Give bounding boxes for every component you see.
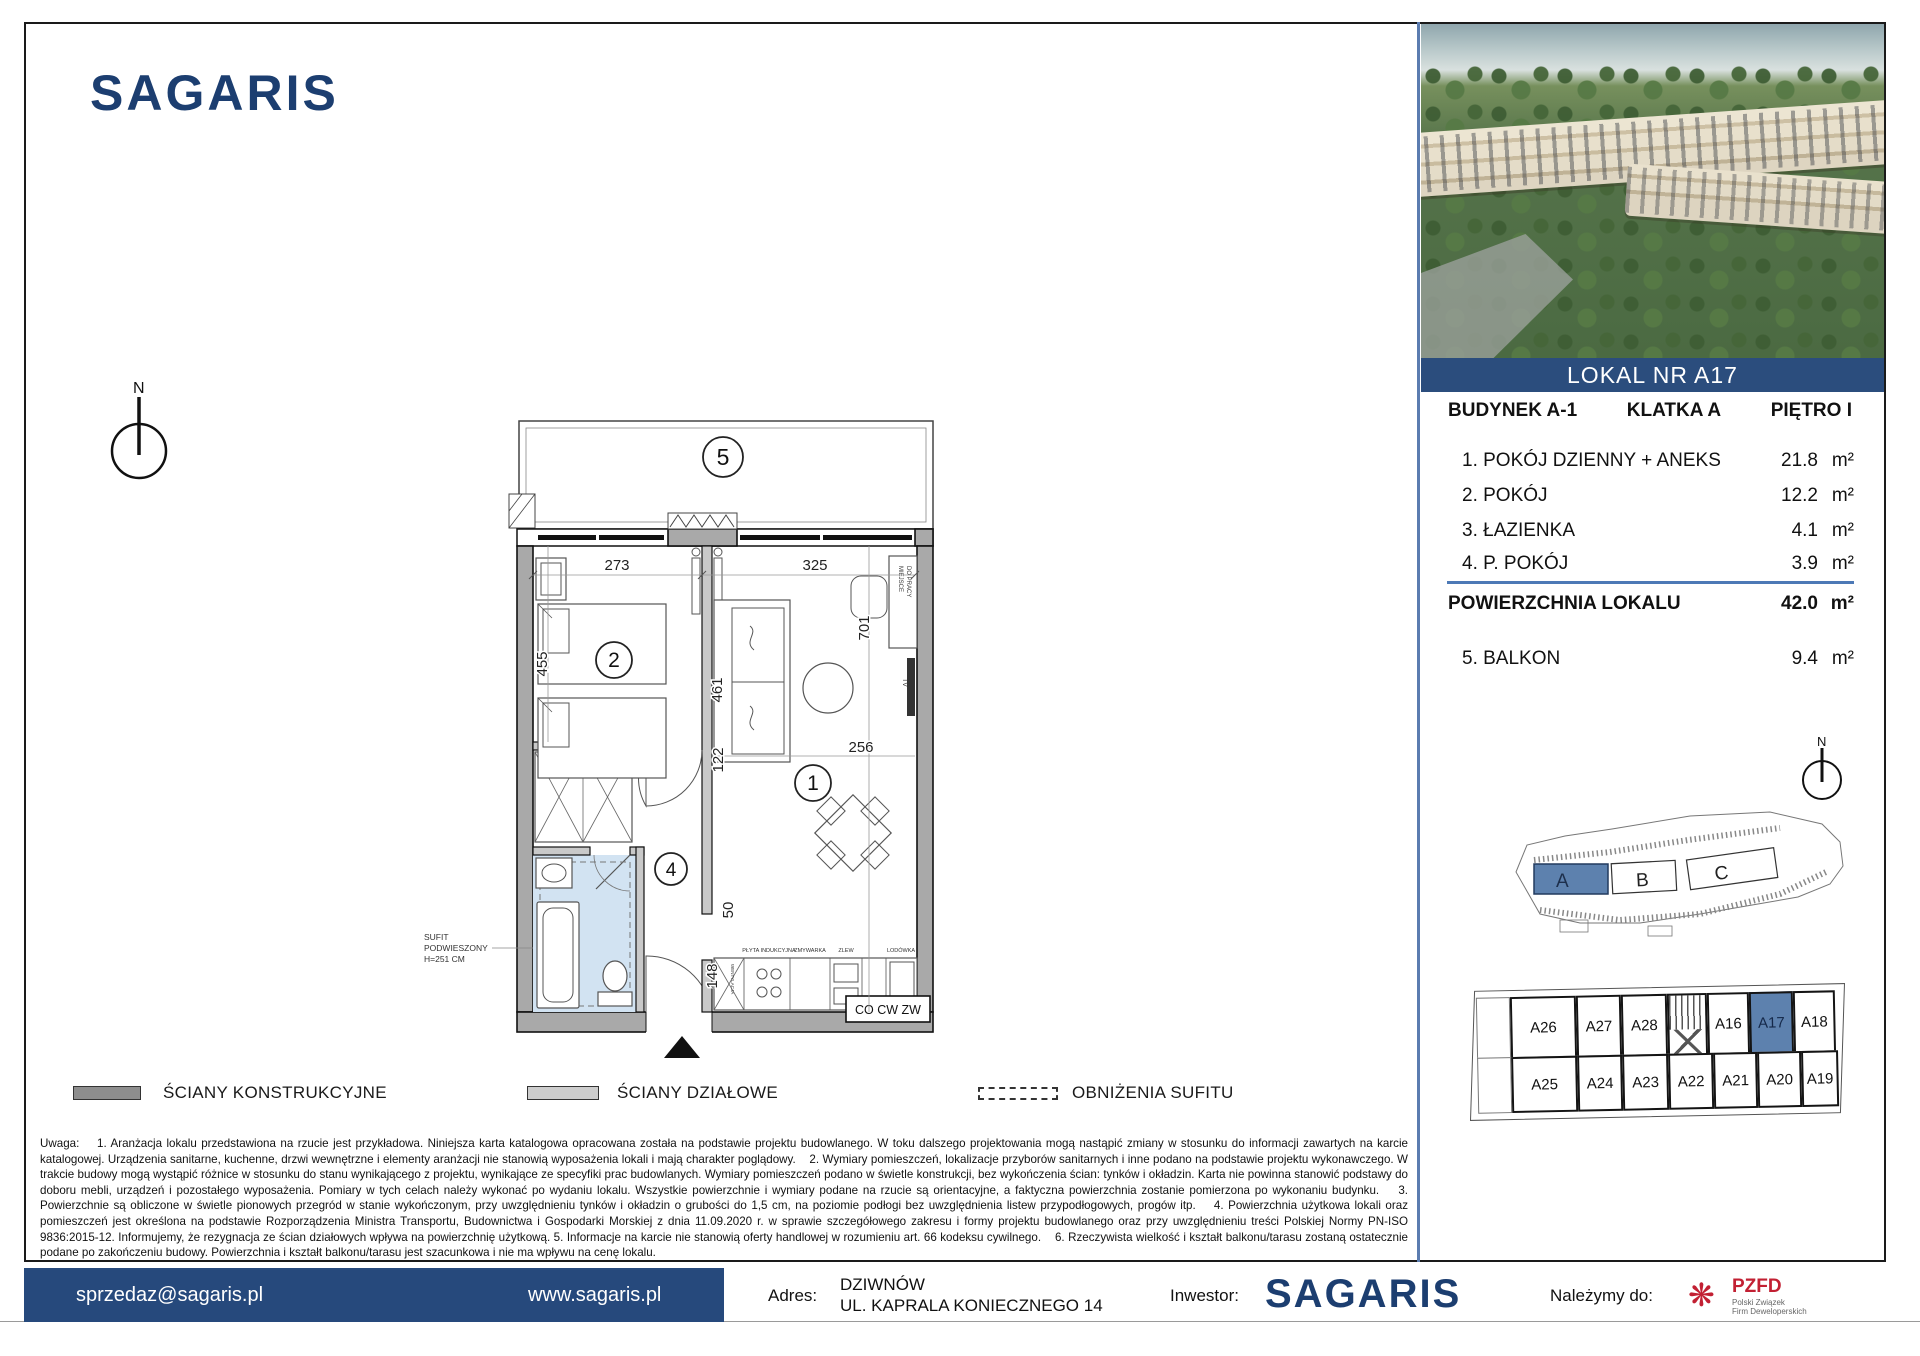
room-number-2: 2: [608, 649, 620, 672]
grid-unit-a17-highlighted: A17: [1749, 991, 1794, 1054]
grid-unit-a22: A22: [1668, 1053, 1714, 1110]
pzfd-subtitle-line2: Firm Deweloperskich: [1732, 1307, 1807, 1316]
bathroom-wall: [533, 847, 590, 855]
total-area-row: POWIERZCHNIA LOKALU 42.0 m²: [1448, 593, 1854, 615]
floor-plan: MIEJSCE DO PRACY TV WENTYLACJA PŁYTA IND…: [405, 352, 955, 1064]
ceiling-note-line2: PODWIESZONY: [424, 943, 488, 953]
grid-unit-a25: A25: [1511, 1056, 1578, 1113]
compass-north-icon: N: [105, 375, 180, 485]
room-unit: m²: [1818, 450, 1854, 472]
pzfd-logo-icon: ❋: [1688, 1276, 1715, 1314]
balcony-row: 5. BALKON 9.4 m²: [1462, 648, 1854, 670]
staircase-label: KLATKA A: [1627, 400, 1721, 422]
total-area: 42.0: [1766, 593, 1818, 615]
balcony-unit: m²: [1818, 648, 1854, 670]
entrance-opening: [646, 1011, 712, 1033]
balcony-area: 9.4: [1766, 648, 1818, 670]
grid-unit-a20: A20: [1757, 1051, 1802, 1108]
floor-label: PIĘTRO I: [1771, 400, 1852, 422]
room-unit: m²: [1818, 485, 1854, 507]
window-strip: [538, 535, 664, 540]
legend-dropped-ceiling: OBNIŻENIA SUFITU: [978, 1083, 1234, 1103]
dim-256: 256: [848, 739, 873, 756]
entrance-arrow: [664, 1036, 700, 1058]
room-area: 21.8: [1766, 450, 1818, 472]
disclaimer-text: Uwaga: 1. Aranżacja lokalu przedstawiona…: [40, 1136, 1408, 1261]
grid-unit-a28: A28: [1621, 994, 1668, 1057]
address-label: Adres:: [768, 1286, 817, 1306]
dim-273: 273: [604, 557, 629, 574]
catalog-card-page: SAGARIS N: [0, 0, 1920, 1356]
room-number-5: 5: [717, 444, 730, 470]
compass-n-label: N: [133, 380, 145, 397]
legend-label: OBNIŻENIA SUFITU: [1072, 1083, 1234, 1103]
tv: [907, 658, 915, 716]
investor-label: Inwestor:: [1170, 1286, 1239, 1306]
grid-unit-a16: A16: [1707, 992, 1750, 1055]
investor-logo: SAGARIS: [1265, 1272, 1461, 1317]
site-building-c: C: [1686, 848, 1777, 890]
dim-455: 455: [534, 651, 551, 676]
exterior-wall-right: [917, 546, 933, 1012]
unit-meta-row: BUDYNEK A-1 KLATKA A PIĘTRO I: [1448, 400, 1852, 422]
utilities-label: CO CW ZW: [855, 1003, 921, 1017]
fridge-label: LODÓWKA: [887, 947, 915, 954]
hob-label: PŁYTA INDUKCYJNA: [742, 948, 796, 954]
dim-50: 50: [720, 902, 737, 919]
grid-row-top: A26 A27 A28 A16 A17 A18: [1476, 990, 1838, 1060]
total-unit: m²: [1818, 593, 1854, 615]
exterior-wall-left: [517, 546, 533, 1012]
unit-banner: LOKAL NR A17: [1421, 358, 1884, 392]
legend-label: ŚCIANY DZIAŁOWE: [617, 1083, 778, 1103]
dim-148: 148: [704, 963, 721, 988]
sales-email-link[interactable]: sprzedaz@sagaris.pl: [76, 1284, 263, 1307]
dim-325: 325: [802, 557, 827, 574]
legend-partition-walls: ŚCIANY DZIAŁOWE: [527, 1083, 778, 1103]
vertical-divider: [1417, 22, 1420, 1262]
room-area: 3.9: [1766, 553, 1818, 575]
room-unit: m²: [1818, 520, 1854, 542]
room-area: 12.2: [1766, 485, 1818, 507]
washbasin: [536, 858, 572, 888]
site-compass-n: N: [1817, 734, 1826, 749]
dim-461: 461: [709, 677, 726, 702]
room-row-2: 2. POKÓJ 12.2 m²: [1462, 485, 1854, 507]
bathroom-wall-right: [636, 847, 644, 1012]
building-label: BUDYNEK A-1: [1448, 400, 1577, 422]
vent-label: WENTYLACJA: [730, 964, 735, 994]
membership-label: Należymy do:: [1550, 1286, 1653, 1306]
site-building-b: B: [1611, 860, 1676, 893]
grid-unit-a19: A19: [1801, 1050, 1839, 1107]
dishwasher-label: ZMYWARKA: [794, 948, 826, 954]
grid-staircase-core: [1667, 993, 1708, 1056]
room-row-3: 3. ŁAZIENKA 4.1 m²: [1462, 520, 1854, 542]
grid-unit-a24: A24: [1577, 1055, 1623, 1112]
pzfd-subtitle: Polski Związek Firm Deweloperskich: [1732, 1298, 1807, 1316]
dining-table: [815, 795, 891, 871]
room-number-4: 4: [666, 860, 677, 881]
partition-wall-swatch: [527, 1086, 599, 1100]
brand-logo: SAGARIS: [90, 64, 339, 122]
room-row-4: 4. P. POKÓJ 3.9 m²: [1462, 553, 1854, 575]
grid-row-bottom: A25 A24 A23 A22 A21 A20 A19: [1477, 1050, 1839, 1114]
bed: [538, 698, 666, 778]
living-furniture: [714, 556, 917, 871]
footer-bar: sprzedaz@sagaris.pl www.sagaris.pl Adres…: [0, 1268, 1920, 1322]
dim-701: 701: [856, 615, 873, 640]
pzfd-name: PZFD: [1732, 1276, 1782, 1298]
site-building-a: [1534, 864, 1608, 894]
structural-wall-swatch: [73, 1086, 141, 1100]
room-name: 2. POKÓJ: [1462, 485, 1766, 507]
room-number-1: 1: [807, 772, 819, 795]
balcony-name: 5. BALKON: [1462, 648, 1766, 670]
ceiling-note-line1: SUFIT: [424, 932, 449, 942]
legend-label: ŚCIANY KONSTRUKCYJNE: [163, 1083, 387, 1103]
room-name: 4. P. POKÓJ: [1462, 553, 1766, 575]
website-link[interactable]: www.sagaris.pl: [528, 1284, 661, 1307]
partition-living: [702, 546, 712, 914]
grid-spacer: [1477, 1057, 1512, 1114]
tv-label: TV: [901, 678, 908, 687]
stairs-icon: [1669, 995, 1706, 1029]
coffee-table: [803, 663, 853, 713]
room-name: 3. ŁAZIENKA: [1462, 520, 1766, 542]
room-name: 1. POKÓJ DZIENNY + ANEKS: [1462, 450, 1766, 472]
toilet: [603, 961, 627, 991]
site-building-b-label: B: [1636, 870, 1650, 892]
desk-label-1: MIEJSCE: [897, 566, 903, 592]
grid-spacer: [1476, 997, 1511, 1060]
address-city: DZIWNÓW: [840, 1275, 925, 1295]
site-building-a-label: A: [1556, 871, 1569, 892]
room-area: 4.1: [1766, 520, 1818, 542]
dropped-ceiling-swatch: [978, 1087, 1058, 1100]
window-strip: [740, 535, 912, 540]
total-label: POWIERZCHNIA LOKALU: [1448, 593, 1766, 615]
grid-unit-a23: A23: [1622, 1054, 1669, 1111]
grid-unit-a21: A21: [1713, 1052, 1758, 1109]
total-separator: [1447, 581, 1854, 584]
dim-122: 122: [710, 747, 727, 772]
building-render-image: [1421, 24, 1884, 358]
site-plan: A B C: [1495, 805, 1865, 950]
sink-label: ZLEW: [838, 948, 854, 954]
legend-structural-walls: ŚCIANY KONSTRUKCYJNE: [73, 1083, 387, 1103]
grid-unit-a27: A27: [1576, 995, 1622, 1058]
desk-label-2: DO PRACY: [905, 566, 911, 597]
site-compass-icon: N: [1790, 730, 1860, 810]
exterior-wall-top: [517, 513, 933, 546]
pzfd-subtitle-line1: Polski Związek: [1732, 1298, 1785, 1307]
floor-unit-grid: A26 A27 A28 A16 A17 A18 A25 A24 A23 A22 …: [1476, 990, 1839, 1114]
grid-unit-a26: A26: [1510, 996, 1577, 1059]
shaft-icon: [1670, 1029, 1707, 1054]
site-building-c-label: C: [1713, 862, 1730, 885]
room-unit: m²: [1818, 553, 1854, 575]
address-street: UL. KAPRALA KONIECZNEGO 14: [840, 1296, 1103, 1316]
ceiling-note-line3: H=251 CM: [424, 954, 465, 964]
room-row-1: 1. POKÓJ DZIENNY + ANEKS 21.8 m²: [1462, 450, 1854, 472]
grid-unit-a18: A18: [1793, 990, 1836, 1053]
